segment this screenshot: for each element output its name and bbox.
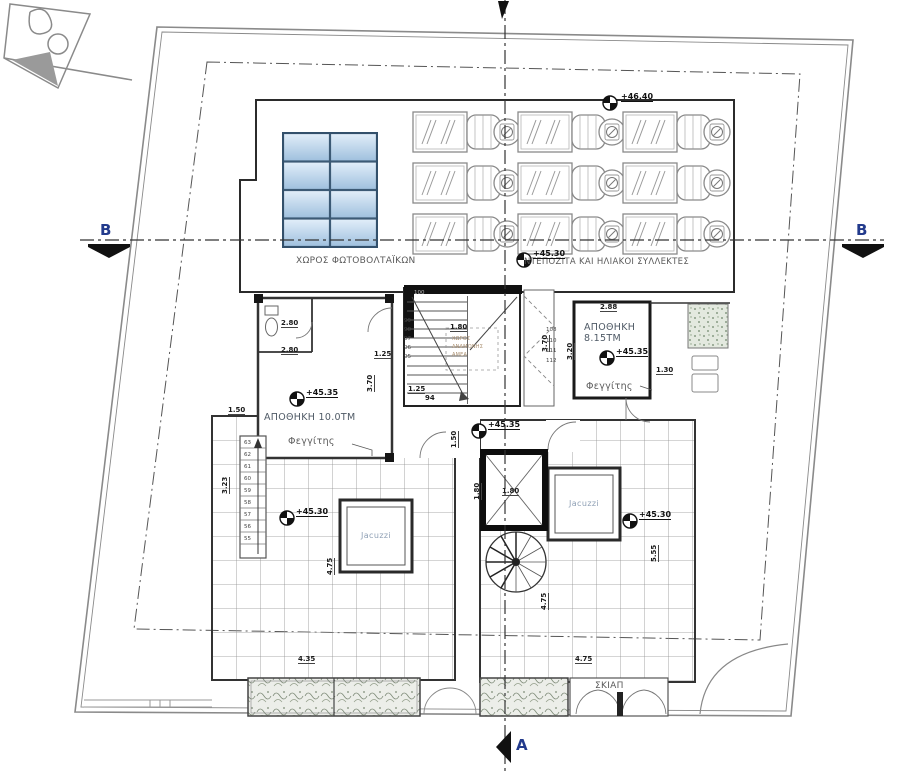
step-number: 62 <box>244 452 251 458</box>
dim-core-d: 1.25 <box>408 385 425 394</box>
step-number: 61 <box>244 464 251 470</box>
label-pv-area: ΧΩΡΟΣ ΦΩΤΟΒΟΛΤΑΪΚΩΝ <box>296 256 416 266</box>
label-storage-left: ΑΠΟΘΗΚΗ 10.0ΤΜ <box>264 412 356 423</box>
dim-stair-side: 3.23 <box>221 477 230 494</box>
equipment <box>692 356 718 370</box>
section-arrow-top <box>498 1 509 19</box>
label-waiting-1: ΧΩΡΟΣ <box>452 336 470 342</box>
toilet <box>266 318 278 336</box>
cistern <box>265 306 278 315</box>
dim-left-wall: 1.50 <box>228 406 245 415</box>
dim-shaft-w: 1.80 <box>502 487 519 496</box>
elevation-landing: +45.35 <box>488 420 520 430</box>
elevation-pv-deck: +45.30 <box>533 249 565 259</box>
label-jacuzzi-left: Jacuzzi <box>361 531 391 540</box>
step-number: 56 <box>244 524 251 530</box>
elevation-terrace-right: +45.30 <box>639 510 671 520</box>
north-arrow-icon <box>4 4 132 88</box>
spiral-stair <box>486 532 546 592</box>
label-storage-right-area: 8.15ΤΜ <box>584 333 621 344</box>
plan-drawing <box>0 0 900 774</box>
step-number: 96 <box>404 345 411 351</box>
dim-right-room-w: 2.88 <box>600 303 617 312</box>
step-number: 99 <box>404 318 411 324</box>
step-number: 98 <box>404 327 411 333</box>
step-number: 97 <box>404 336 411 342</box>
step-number: 108 <box>546 327 557 333</box>
equipment <box>692 374 718 392</box>
step-number: 95 <box>404 354 411 360</box>
dim-left-room-w1: 2.80 <box>281 319 298 328</box>
dim-landing-step: 94 <box>425 394 435 402</box>
step-number: 58 <box>244 500 251 506</box>
label-shade: ΣΚΙΑΠ <box>595 681 624 691</box>
dim-shaft-h: 1.80 <box>473 483 482 500</box>
dim-right-room-h: 3.20 <box>566 343 575 360</box>
dim-left-room-h: 3.70 <box>366 375 375 392</box>
dim-terrace-left-h: 4.75 <box>326 558 335 575</box>
section-letter-a-bottom: A <box>516 738 528 753</box>
dim-terrace-right-w: 4.75 <box>575 655 592 664</box>
section-letter-b-left: B <box>100 223 111 238</box>
dim-corridor: 1.50 <box>450 431 459 448</box>
planter-bottom-right <box>480 678 568 716</box>
dim-right-planter: 1.30 <box>656 366 673 375</box>
dim-terrace-right-h: 5.55 <box>650 545 659 562</box>
label-jacuzzi-right: Jacuzzi <box>569 499 599 508</box>
pv-array <box>283 133 377 247</box>
dim-core-w: 1.80 <box>450 323 467 332</box>
sidewalk-steps <box>84 700 212 707</box>
planter-bottom-left <box>248 678 420 716</box>
step-number: 55 <box>244 536 251 542</box>
elevation-storage-left: +45.35 <box>306 388 338 398</box>
step-number: 112 <box>546 358 557 364</box>
section-arrow-b-left <box>88 244 130 258</box>
planter-right <box>688 304 728 348</box>
storage-room-right <box>574 302 730 422</box>
solar-collectors <box>413 112 730 254</box>
label-waiting-3: ΑΜΕΑ <box>452 352 467 358</box>
label-storage-right: ΑΠΟΘΗΚΗ <box>584 322 635 333</box>
floor-plan-canvas: ΧΩΡΟΣ ΦΩΤΟΒΟΛΤΑΪΚΩΝ ΝΤΕΠΟΖΙΤΑ ΚΑΙ ΗΛΙΑΚΟ… <box>0 0 900 774</box>
step-number: 59 <box>244 488 251 494</box>
dim-spiral-h: 4.75 <box>540 593 549 610</box>
step-number: 60 <box>244 476 251 482</box>
elevation-roof: +46.40 <box>621 92 653 102</box>
dim-left-room-w2: 2.80 <box>281 346 298 355</box>
label-waiting-2: ΑΝΑΜΟΝΗΣ <box>452 344 483 350</box>
section-arrow-a-bottom <box>496 731 511 763</box>
step-number: 111 <box>546 348 557 354</box>
step-number: 57 <box>244 512 251 518</box>
step-number: 100 <box>414 290 425 296</box>
label-skylight-right: Φεγγίτης <box>586 381 633 392</box>
dim-terrace-left-w: 4.35 <box>298 655 315 664</box>
dim-left-room-d1: 1.25 <box>374 350 391 359</box>
corridor-left <box>392 400 480 458</box>
elevation-terrace-left: +45.30 <box>296 507 328 517</box>
label-skylight-left: Φεγγίτης <box>288 436 335 447</box>
step-number: 110 <box>546 338 557 344</box>
elevation-storage-right: +45.35 <box>616 347 648 357</box>
section-letter-b-right: B <box>856 223 867 238</box>
step-number: 63 <box>244 440 251 446</box>
section-arrow-b-right <box>842 244 884 258</box>
